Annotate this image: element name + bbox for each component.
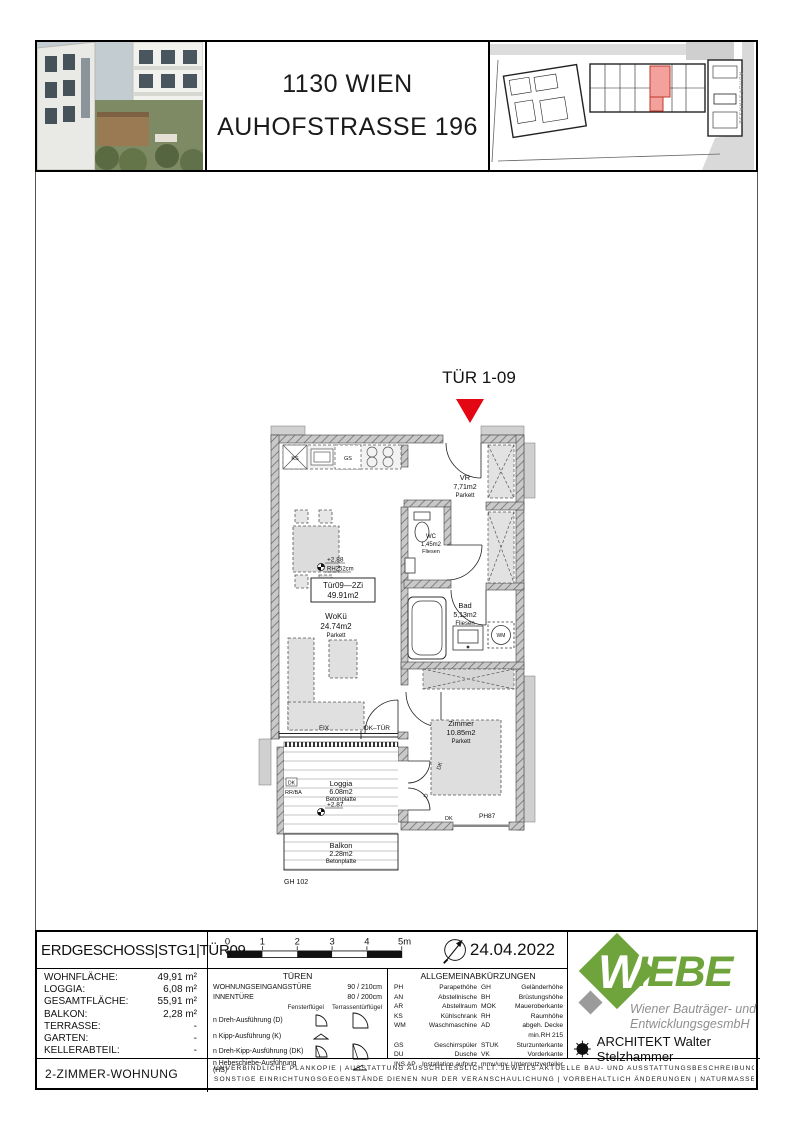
loggia-threshold-grille [284, 742, 398, 747]
building-photo [37, 42, 207, 170]
north-arrow-icon [440, 934, 470, 966]
washbasin [453, 626, 483, 650]
plan-sheet: 1130 WIEN AUHOFSTRASSE 196 [0, 0, 793, 1123]
floorplan-drawing: KS GS [233, 420, 543, 890]
site-plan: AUHOFSTRASSE [490, 42, 756, 170]
svg-text:3: 3 [329, 935, 334, 946]
scale-row: 0 1 2 3 4 5m [208, 932, 567, 969]
project-title: 1130 WIEN AUHOFSTRASSE 196 [207, 42, 490, 170]
title-block: ERDGESCHOSS|STG1|TÜR09 WOHNFLÄCHE:49,91 … [35, 930, 758, 1090]
site-plan-drawing: AUHOFSTRASSE [490, 42, 754, 170]
table-row: KELLERABTEIL:- [37, 1045, 207, 1057]
hall-wardrobe [423, 669, 514, 689]
svg-text:Fliesen: Fliesen [455, 621, 474, 627]
title-block-left: ERDGESCHOSS|STG1|TÜR09 WOHNFLÄCHE:49,91 … [37, 932, 207, 1088]
door-spec-row: INNENTÜRE80 / 200cm [213, 993, 382, 1003]
project-city: 1130 WIEN [282, 70, 412, 99]
vr-wardrobe [488, 445, 514, 583]
svg-text:49.91m2: 49.91m2 [327, 591, 359, 600]
ph-label: PH87 [479, 813, 496, 820]
wiebe-logo: W IEBE Wiener Bauträger- und Entwicklung… [568, 932, 760, 1058]
svg-text:1: 1 [260, 935, 265, 946]
svg-text:24.74m2: 24.74m2 [320, 622, 352, 631]
room-label-loggia: Loggia 6.08m2 Betonplatte [326, 779, 357, 803]
plan-area: TÜR 1-09 [36, 172, 759, 931]
plan-date: 24.04.2022 [470, 940, 555, 960]
dk-door-label: DK–TÜR [364, 724, 390, 732]
wiebe-wordmark: IEBE [636, 948, 732, 997]
door-type-row: n Kipp-Ausführung (K) [213, 1029, 382, 1043]
dishwasher-label: GS [344, 456, 352, 462]
svg-text:5m: 5m [398, 935, 411, 946]
kitchen-counter [283, 445, 401, 469]
door-tilt-icon [304, 1032, 338, 1040]
svg-text:1,45m2: 1,45m2 [421, 542, 442, 548]
svg-text:DK: DK [288, 781, 296, 787]
svg-text:RR/BA: RR/BA [285, 790, 302, 796]
d-label: D [423, 793, 430, 799]
svg-text:4: 4 [364, 935, 369, 946]
svg-text:VR: VR [460, 473, 471, 482]
unit-label-box: Tür09—2Zi 49.91m2 [311, 578, 375, 602]
doors-legend: TÜREN WOHNUNGSEINGANGSTÜRE90 / 210cm INN… [208, 969, 388, 1058]
fridge-label: KS [291, 456, 299, 462]
sofa [288, 638, 364, 730]
svg-text:Tür09—2Zi: Tür09—2Zi [323, 581, 363, 590]
svg-text:Parkett: Parkett [451, 739, 470, 745]
svg-text:5,13m2: 5,13m2 [453, 612, 476, 619]
svg-text:7,71m2: 7,71m2 [453, 484, 476, 491]
svg-text:0: 0 [225, 935, 230, 946]
site-plan-street-label: AUHOFSTRASSE [737, 72, 743, 125]
svg-text:WC: WC [426, 534, 437, 540]
project-street: AUHOFSTRASSE 196 [217, 113, 478, 142]
entrance-door-label: TÜR 1-09 [424, 368, 534, 388]
abbreviations-legend: ALLGEMEINABKÜRZUNGEN PHParapethöheGHGelä… [388, 969, 568, 1058]
area-table: WOHNFLÄCHE:49,91 m² LOGGIA:6,08 m² GESAM… [37, 969, 207, 1058]
room-height-value: RH252cm [327, 567, 354, 573]
svg-text:Loggia: Loggia [330, 779, 353, 788]
door-swing-icon [338, 1012, 382, 1029]
table-row: BALKON:2,28 m² [37, 1009, 207, 1021]
gh-label: GH 102 [284, 879, 308, 886]
svg-text:Fliesen: Fliesen [422, 549, 440, 555]
title-block-logo: W IEBE Wiener Bauträger- und Entwicklung… [567, 932, 760, 1058]
svg-text:2: 2 [295, 935, 300, 946]
washing-machine-label: WM [497, 633, 506, 639]
dk-label-2: DK [445, 816, 453, 822]
svg-text:Parkett: Parkett [326, 633, 345, 639]
sheet-header: 1130 WIEN AUHOFSTRASSE 196 [35, 40, 758, 172]
unit-type-label: 2-ZIMMER-WOHNUNG [37, 1058, 207, 1088]
svg-text:Parkett: Parkett [455, 493, 474, 499]
table-row: WOHNFLÄCHE:49,91 m² [37, 972, 207, 984]
zimmer-window [453, 825, 509, 828]
disclaimer: UNVERBINDLICHE PLANKOPIE | AUSSTATTUNG A… [207, 1058, 760, 1092]
room-label-bad: Bad 5,13m2 Fliesen [453, 601, 476, 627]
scale-bar: 0 1 2 3 4 5m [220, 934, 418, 966]
svg-text:WoKü: WoKü [325, 612, 347, 621]
abbreviations-grid: PHParapethöheGHGeländerhöhe ANAbstellnis… [394, 983, 562, 1069]
door-column-headers: FensterflügelTerrassentürflügel [213, 1003, 382, 1012]
door-spec-row: WOHNUNGSEINGANGSTÜRE90 / 210cm [213, 983, 382, 993]
dining-set [293, 510, 339, 588]
svg-text:Zimmer: Zimmer [448, 719, 474, 728]
svg-text:Bad: Bad [458, 601, 471, 610]
svg-text:2.28m2: 2.28m2 [329, 851, 352, 858]
abbreviations-title: ALLGEMEINABKÜRZUNGEN [394, 971, 562, 981]
level-value: +2.88 [327, 557, 344, 564]
svg-text:6.08m2: 6.08m2 [329, 789, 352, 796]
svg-text:Betonplatte: Betonplatte [326, 859, 357, 865]
room-label-woku: WoKü 24.74m2 Parkett [320, 612, 352, 639]
title-block-middle: 0 1 2 3 4 5m [207, 932, 567, 1058]
wiebe-tagline: Wiener Bauträger- und EntwicklungsgesmbH [630, 1002, 756, 1032]
svg-text:Betonplatte: Betonplatte [326, 797, 357, 803]
door-type-row: n Dreh-Ausführung (D) [213, 1012, 382, 1029]
door-swing-icon [304, 1014, 338, 1027]
doors-legend-title: TÜREN [213, 971, 382, 981]
fix-window-label: FIX [319, 725, 330, 732]
svg-text:Balkon: Balkon [330, 841, 353, 850]
table-row: LOGGIA:6,08 m² [37, 984, 207, 996]
plan-title: ERDGESCHOSS|STG1|TÜR09 [37, 932, 207, 969]
living-glass-front [279, 731, 398, 739]
building-photo-image [37, 42, 203, 170]
table-row: GARTEN:- [37, 1033, 207, 1045]
door-tilt-turn-icon [304, 1045, 338, 1058]
architect-seal-icon [574, 1039, 591, 1059]
bathtub [408, 597, 446, 659]
table-row: TERRASSE:- [37, 1021, 207, 1033]
sheet-frame: 1130 WIEN AUHOFSTRASSE 196 [35, 40, 758, 1090]
svg-text:10.85m2: 10.85m2 [446, 728, 475, 737]
room-label-balkon: Balkon 2.28m2 Betonplatte [326, 841, 357, 865]
table-row: GESAMTFLÄCHE:55,91 m² [37, 996, 207, 1008]
